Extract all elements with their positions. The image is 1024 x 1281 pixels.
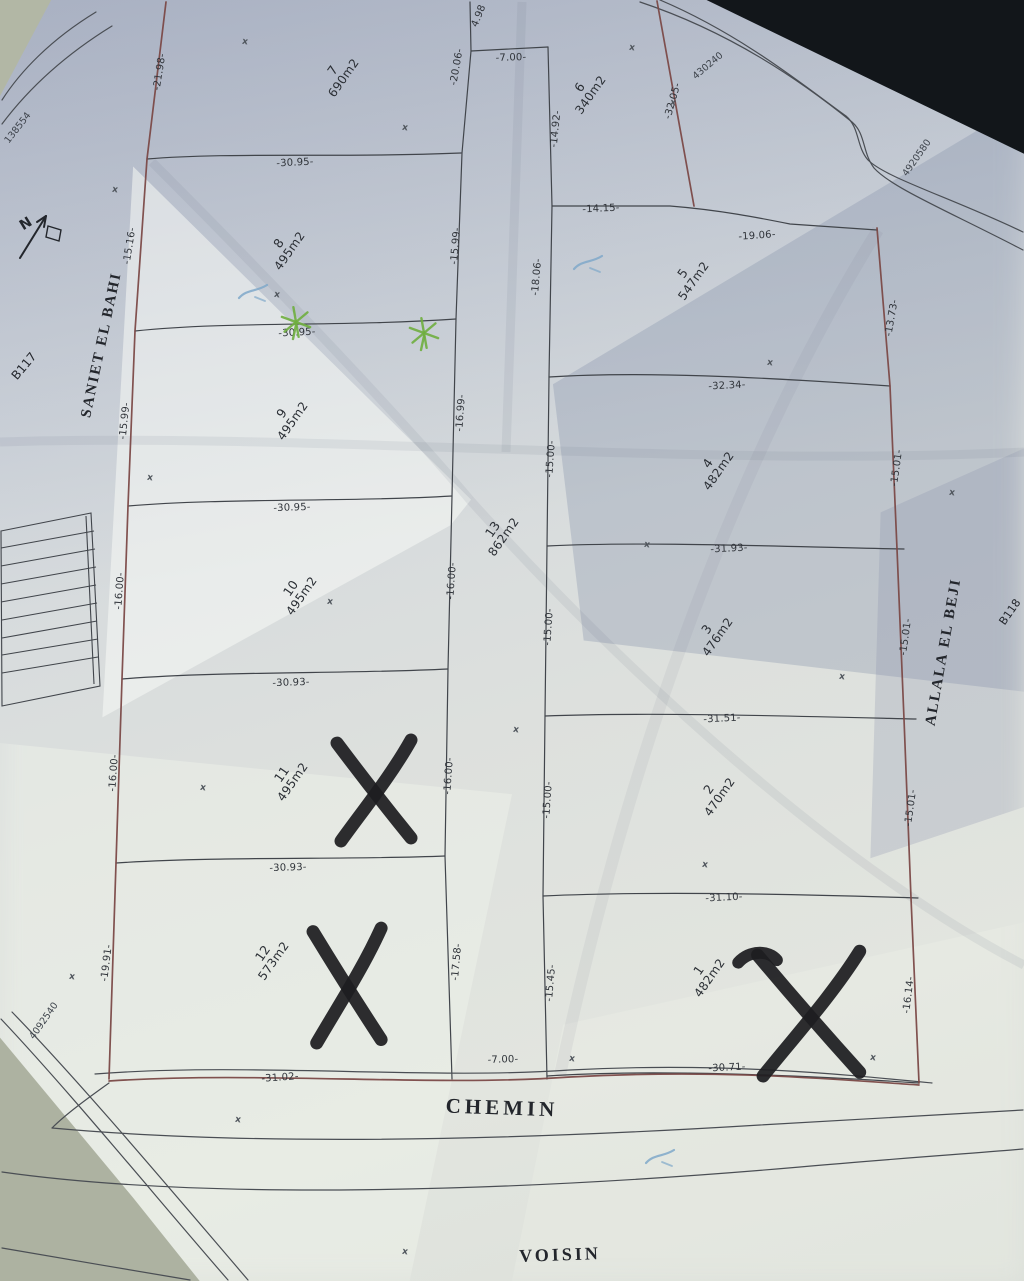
cadastral-plan-photo: SANIET EL BAHI B117 ALLALA EL BEJI B118 … (0, 0, 1024, 1281)
